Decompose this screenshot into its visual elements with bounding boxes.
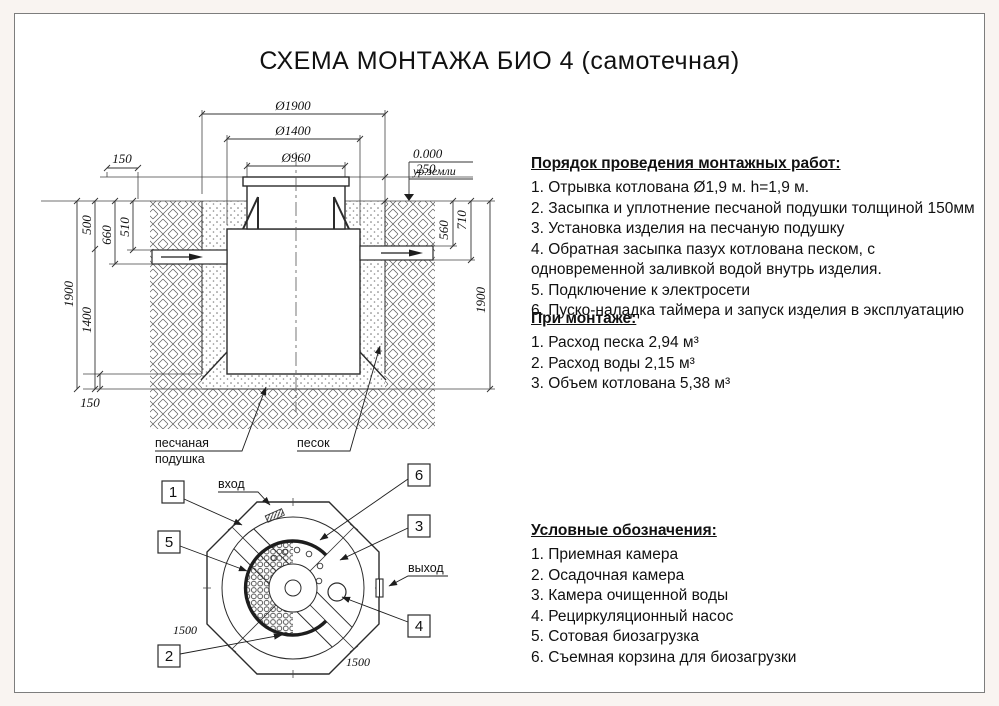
dim-left-510: 510 — [117, 217, 132, 237]
plan-view: вход выход 1500 1500 1 5 — [158, 464, 448, 678]
legend-item: 5. Сотовая биозагрузка — [531, 627, 975, 648]
installation-steps-block: Порядок проведения монтажных работ: 1. О… — [531, 155, 975, 322]
montage-consumption-block: При монтаже: 1. Расход песка 2,94 м³ 2. … — [531, 310, 975, 395]
dim-left-500: 500 — [79, 215, 94, 235]
legend-item: 4. Рециркуляционный насос — [531, 607, 975, 628]
ground-level-mark: 0.000 ур.земли — [404, 146, 473, 201]
tank-body — [227, 177, 360, 374]
installation-step: 3. Установка изделия на песчаную подушку — [531, 219, 975, 240]
inlet-pipe — [152, 250, 227, 264]
recirculation-pump-circle — [328, 583, 346, 601]
label-sand-cushion: песчаная — [155, 436, 209, 450]
callout-3: 3 — [415, 518, 423, 535]
legend-item: 3. Камера очищенной воды — [531, 586, 975, 607]
outlet-pipe — [360, 246, 433, 260]
label-outlet: выход — [408, 561, 444, 575]
drawing-title: СХЕМА МОНТАЖА БИО 4 (самотечная) — [15, 47, 984, 76]
callout-2: 2 — [165, 648, 173, 665]
label-sand: песок — [297, 436, 330, 450]
installation-drawing: 0.000 ур.земли Ø1900 Ø1400 Ø960 150 250 — [33, 94, 503, 694]
installation-step: 4. Обратная засыпка пазух котлована песк… — [531, 240, 975, 281]
dim-right-1900: 1900 — [473, 287, 488, 314]
dim-plan-1500-bottom: 1500 — [346, 655, 370, 669]
installation-steps-title: Порядок проведения монтажных работ: — [531, 155, 975, 173]
montage-item: 1. Расход песка 2,94 м³ — [531, 333, 975, 354]
dim-dia-1900: Ø1900 — [274, 98, 311, 113]
level-triangle-icon — [404, 194, 414, 201]
sand-cushion — [202, 374, 385, 389]
montage-item: 3. Объем котлована 5,38 м³ — [531, 374, 975, 395]
montage-item: 2. Расход воды 2,15 м³ — [531, 354, 975, 375]
dim-right-560: 560 — [436, 220, 451, 240]
dim-gap-250: 250 — [416, 161, 436, 176]
dim-dia-1400: Ø1400 — [274, 123, 311, 138]
dim-plan-1500-left: 1500 — [173, 623, 197, 637]
dim-dia-960: Ø960 — [281, 150, 311, 165]
dim-bottom-150: 150 — [80, 395, 100, 410]
center-circle — [285, 580, 301, 596]
dim-left-660: 660 — [99, 225, 114, 245]
legend-block: Условные обозначения: 1. Приемная камера… — [531, 522, 975, 668]
sheet-frame: СХЕМА МОНТАЖА БИО 4 (самотечная) — [14, 13, 985, 693]
label-inlet: вход — [218, 477, 245, 491]
dim-left-1400: 1400 — [79, 307, 94, 334]
callout-1: 1 — [169, 484, 177, 501]
installation-step: 2. Засыпка и уплотнение песчаной подушки… — [531, 199, 975, 220]
dim-right-710: 710 — [454, 210, 469, 230]
legend-item: 6. Съемная корзина для биозагрузки — [531, 648, 975, 669]
cross-section-view: 0.000 ур.земли Ø1900 Ø1400 Ø960 150 250 — [41, 98, 495, 466]
callout-5: 5 — [165, 534, 173, 551]
legend-item: 1. Приемная камера — [531, 545, 975, 566]
installation-step: 5. Подключение к электросети — [531, 281, 975, 302]
dim-left-1900: 1900 — [61, 281, 76, 308]
installation-step: 1. Отрывка котлована Ø1,9 м. h=1,9 м. — [531, 178, 975, 199]
callout-6: 6 — [415, 467, 423, 484]
plan-outlet-fitting — [376, 579, 383, 597]
legend-title: Условные обозначения: — [531, 522, 975, 540]
callout-4: 4 — [415, 618, 423, 635]
label-sand-cushion-2: подушка — [155, 452, 205, 466]
level-value: 0.000 — [413, 146, 443, 161]
dim-top-150: 150 — [112, 151, 132, 166]
montage-title: При монтаже: — [531, 310, 975, 328]
legend-item: 2. Осадочная камера — [531, 566, 975, 587]
outlet-leader — [389, 576, 448, 586]
